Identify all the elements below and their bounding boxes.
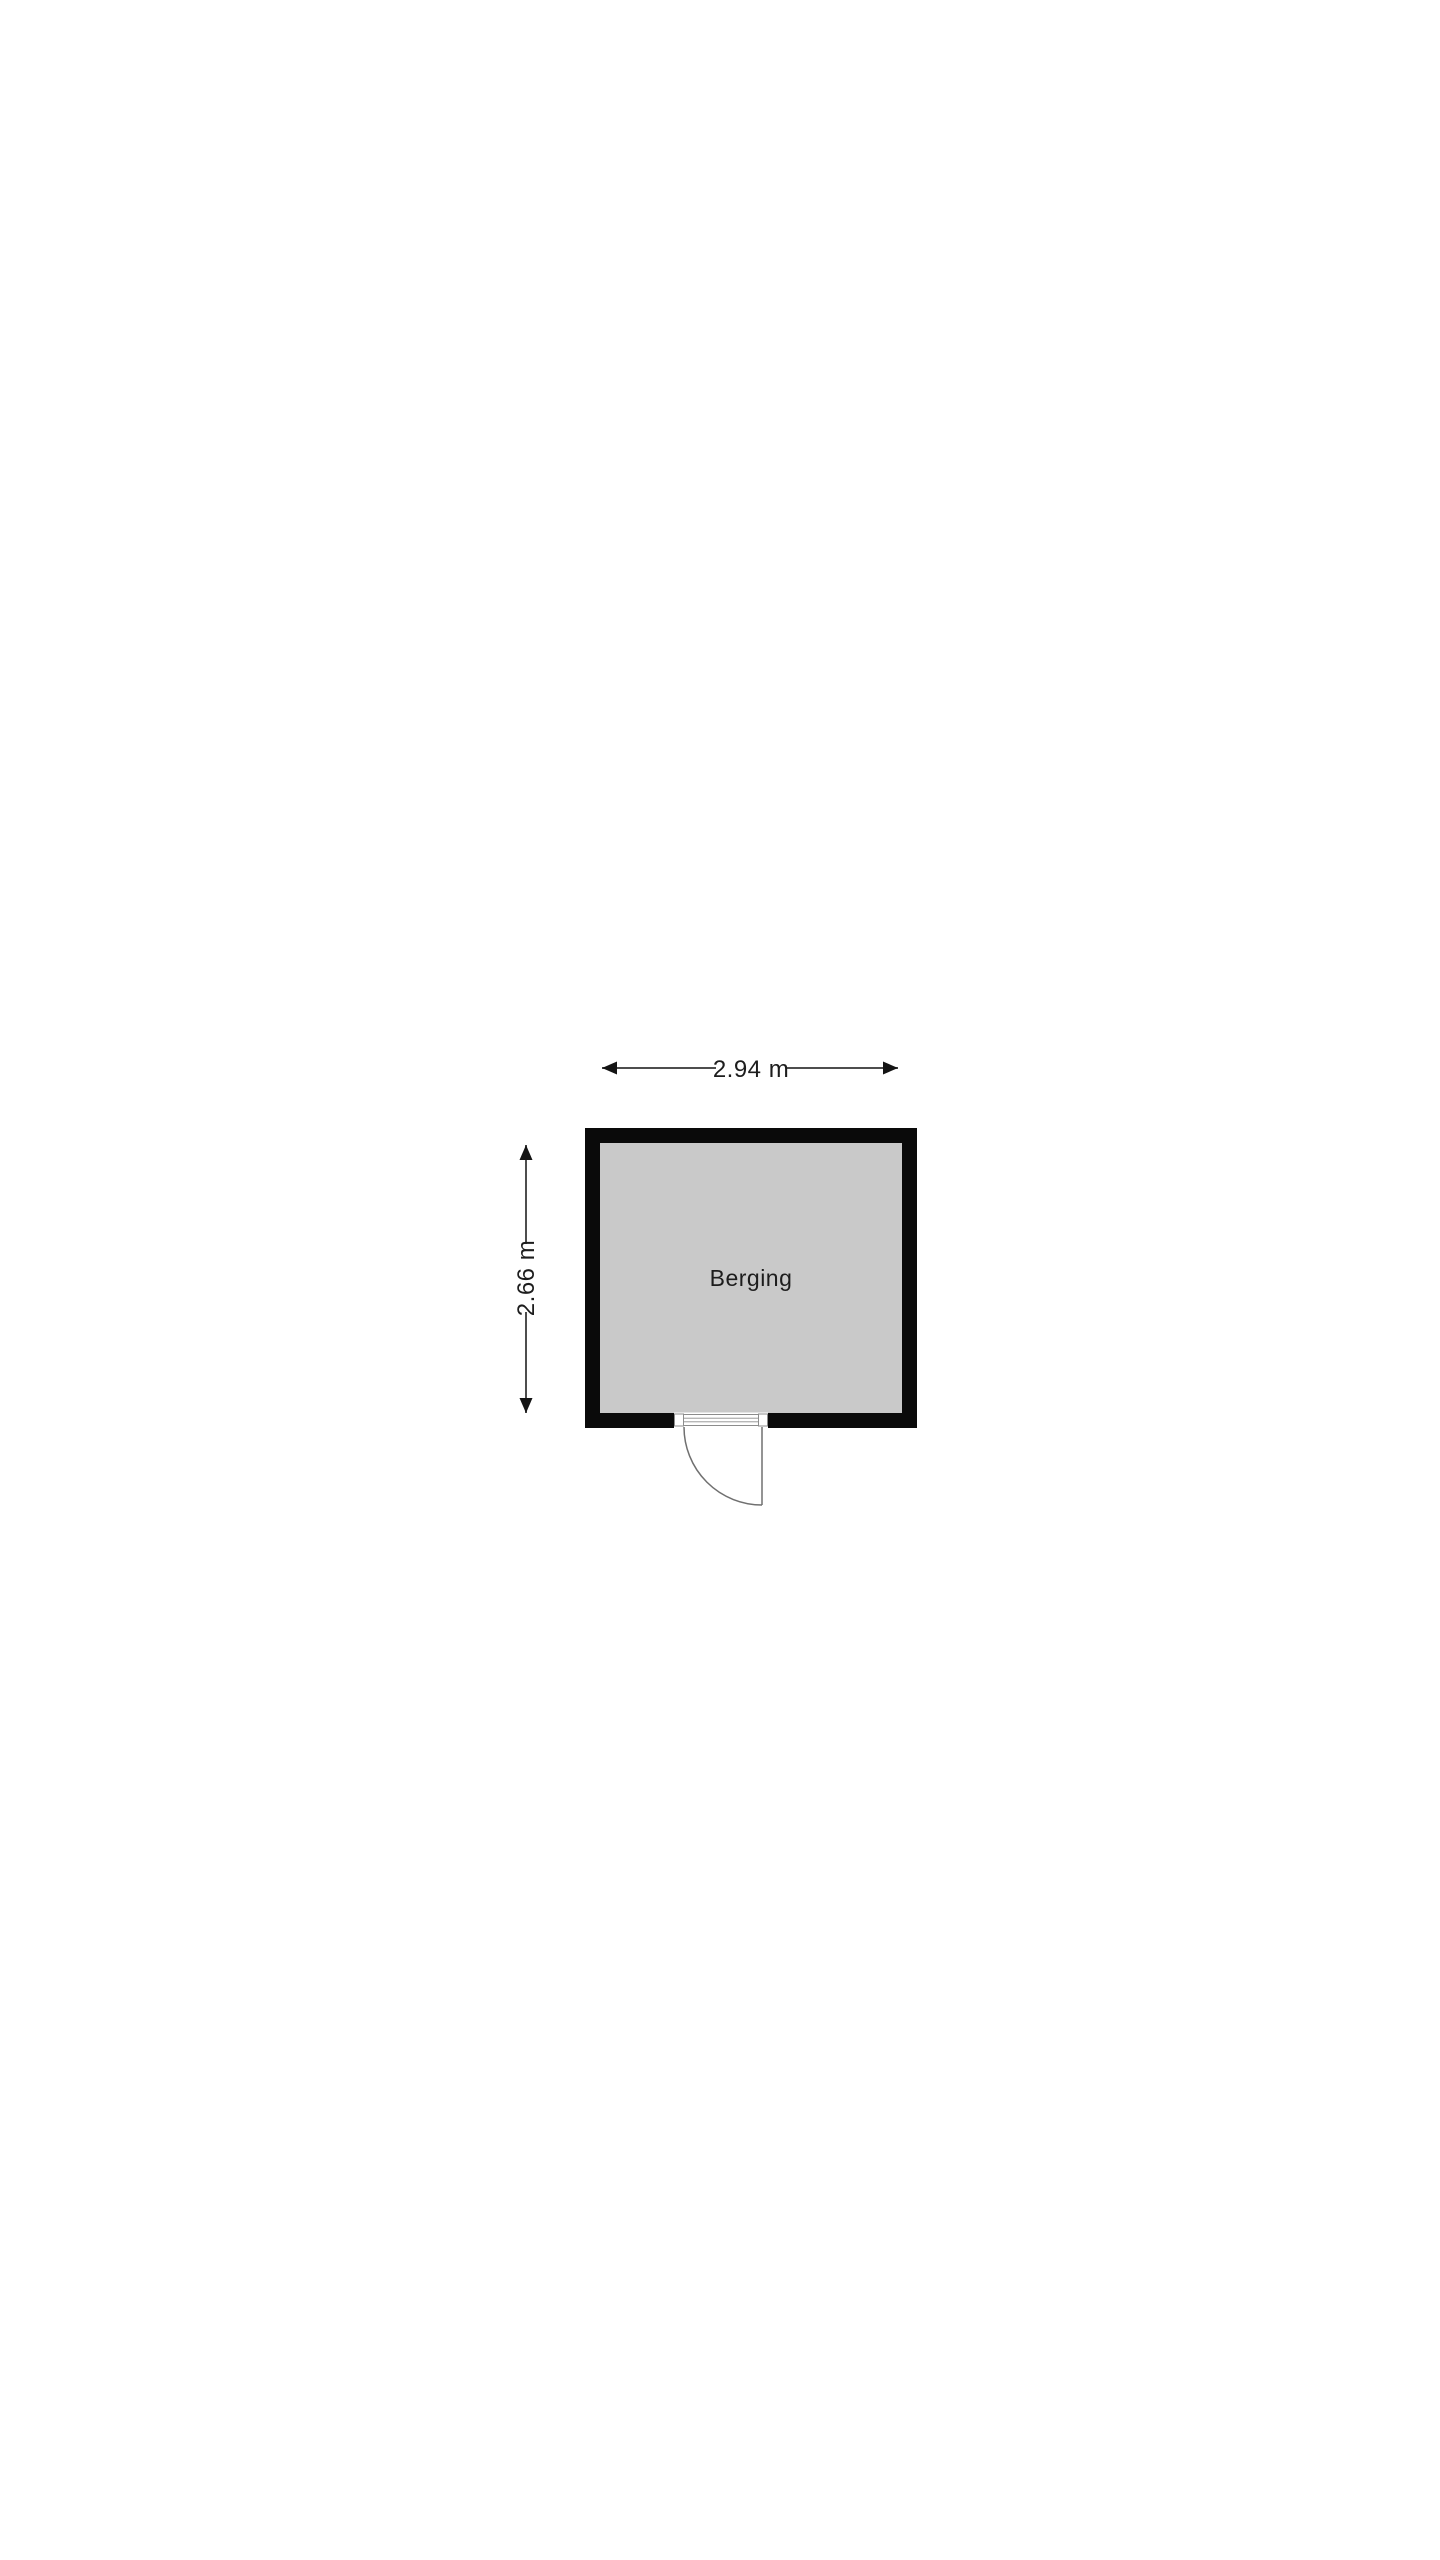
page-canvas: 2.94 m 2.66 m Berging (0, 0, 1440, 2560)
door-jamb-right (759, 1414, 768, 1426)
door-threshold (684, 1415, 759, 1426)
room-label: Berging (710, 1265, 793, 1291)
height-dimension-label: 2.66 m (513, 1240, 540, 1316)
door-jamb-left (675, 1414, 684, 1426)
room-berging: Berging (585, 1128, 917, 1428)
width-dimension-label: 2.94 m (713, 1056, 789, 1083)
floor-plan-canvas: 2.94 m 2.66 m Berging (0, 0, 1440, 2560)
